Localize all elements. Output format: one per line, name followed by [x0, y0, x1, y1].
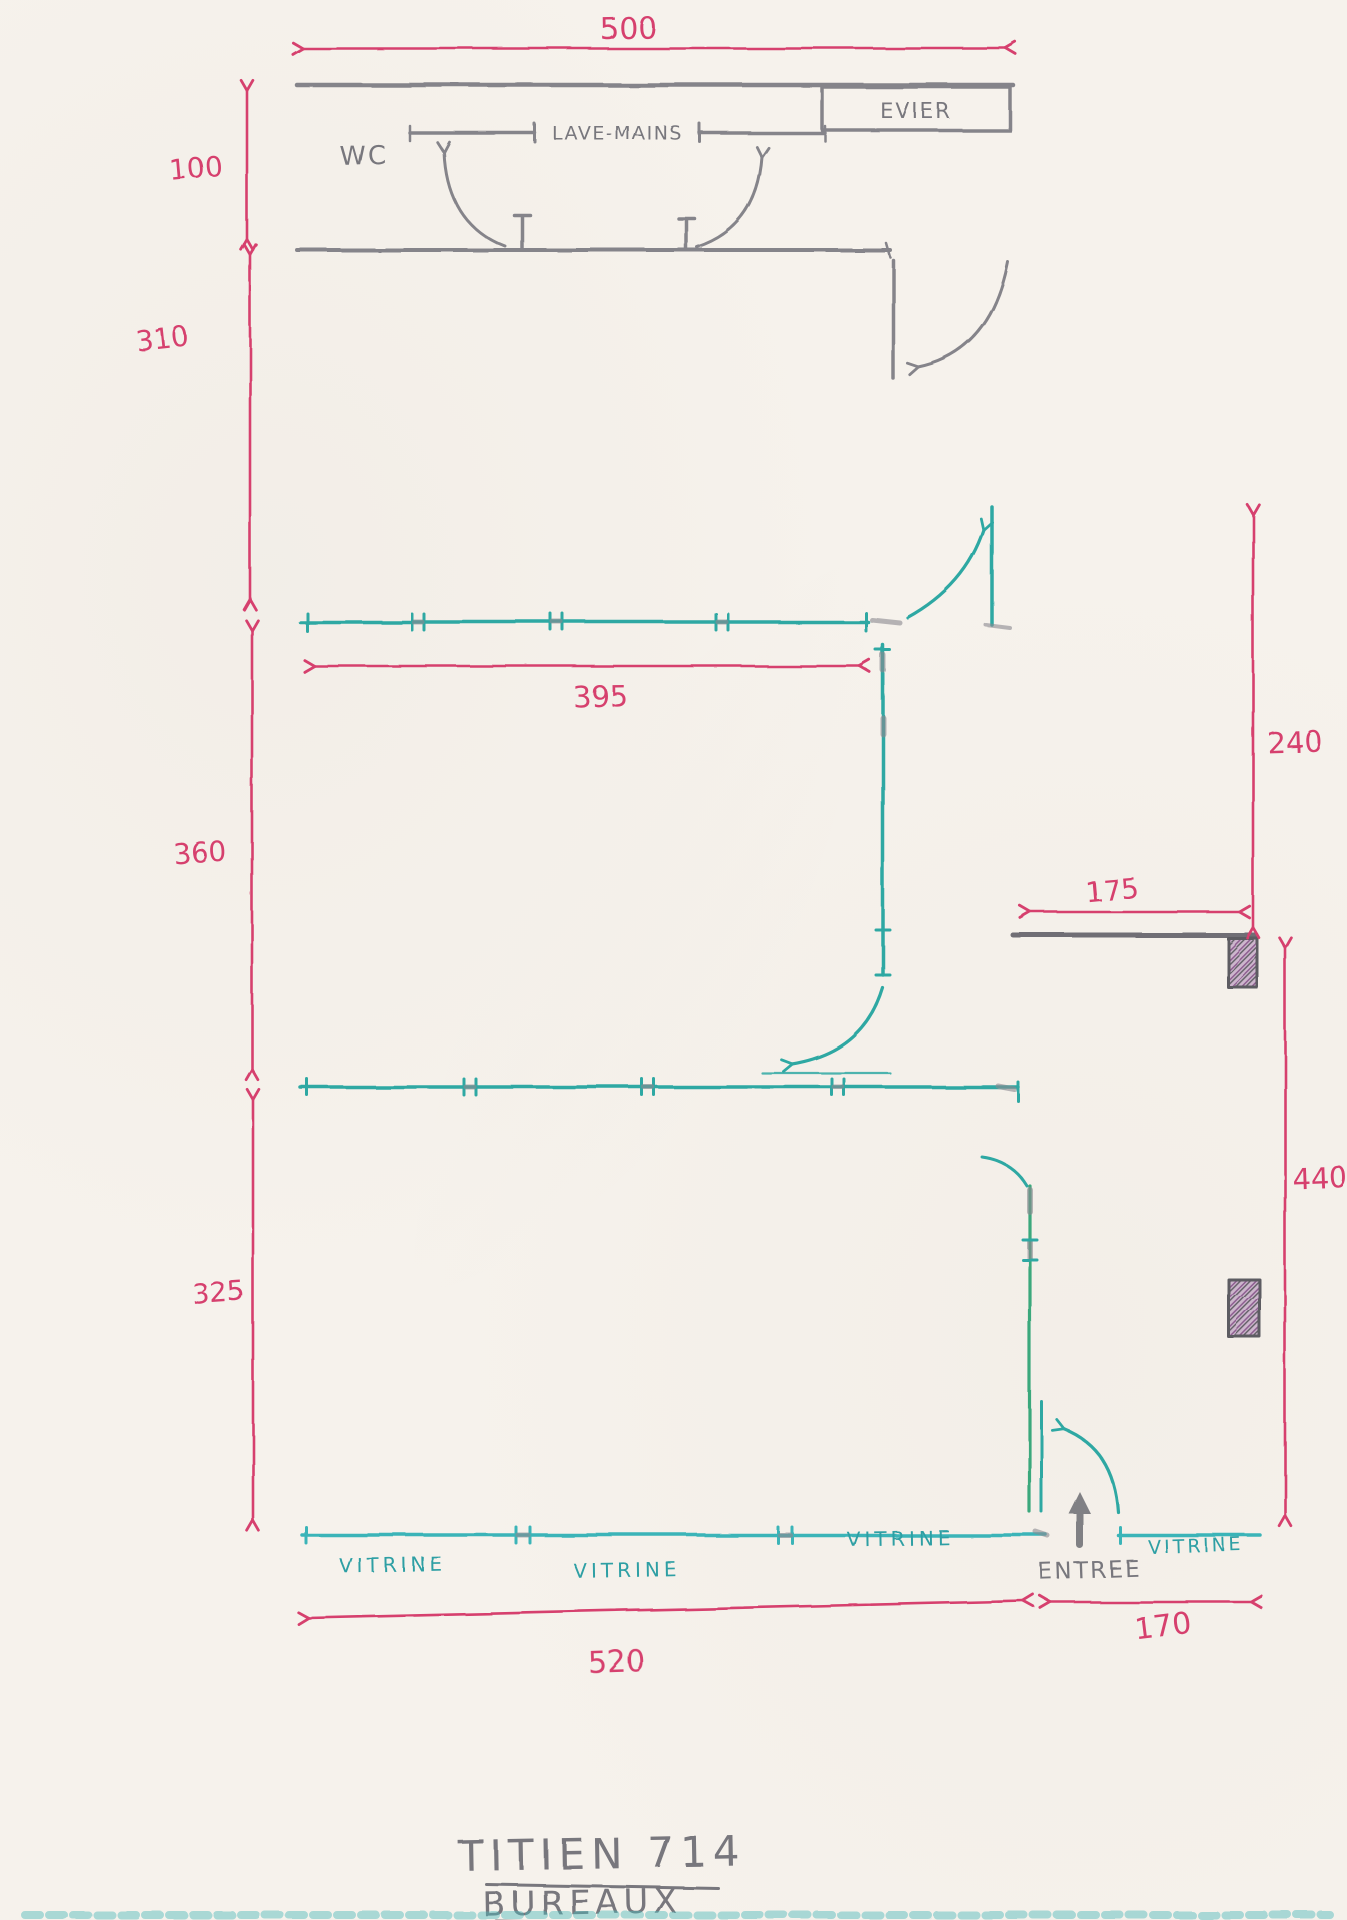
outer-walls [297, 85, 1256, 1535]
joint-smudge [986, 625, 1010, 628]
dim-label-zone3-depth: 325 [191, 1274, 247, 1311]
vitrine-label-2: VITRINE [573, 1557, 681, 1583]
dim-line-520 [308, 1601, 1024, 1618]
dim-label-total-width: 500 [599, 11, 657, 47]
entrance-door-swing [1064, 1429, 1118, 1512]
partition-a-door-swing [908, 530, 984, 618]
entree-arrow-head [1069, 1492, 1091, 1514]
entree-label: ENTREE [1038, 1556, 1142, 1586]
title-block: TITIEN 714 BUREAUX [457, 1826, 746, 1920]
dim-label-right-upper: 240 [1266, 724, 1323, 760]
plan-title: TITIEN 714 [457, 1826, 746, 1880]
scanned-floor-plan-page: WC LAVE-MAINS EVIER ENTREE VITRINE VITRI… [0, 0, 1347, 1920]
dim-label-recess-width: 175 [1084, 872, 1140, 910]
shopfront-wall [302, 1527, 1260, 1543]
vitrine-label-1: VITRINE [339, 1552, 447, 1578]
dim-label-front-right: 170 [1132, 1606, 1193, 1648]
fixture-label-evier: EVIER [880, 99, 952, 123]
dim-label-zone2-width: 395 [572, 679, 628, 714]
entree-marker [1069, 1492, 1091, 1545]
wc-door-post-right [678, 218, 694, 250]
dim-label-zone1-depth: 310 [134, 319, 191, 357]
pillar-hatched-upper [1228, 938, 1257, 987]
wc-door-swing-left [444, 152, 505, 246]
dim-label-wc-depth: 100 [168, 150, 224, 188]
dim-label-right-lower: 440 [1291, 1160, 1347, 1196]
dim-label-front-left: 520 [587, 1644, 645, 1681]
vitrine-label-4: VITRINE [1147, 1533, 1244, 1558]
wc-door-post-left [514, 215, 530, 250]
room-label-wc: WC [339, 140, 388, 172]
wc-entry-door-swing [918, 262, 1008, 367]
partition-c [300, 1079, 1027, 1186]
partition-b-door-swing [792, 988, 883, 1064]
vitrine-label-3: VITRINE [846, 1525, 954, 1551]
corridor-door-swing [982, 1157, 1027, 1186]
dimension-lines [247, 48, 1285, 1618]
fixture-label-lave-mains: LAVE-MAINS [553, 123, 684, 145]
wc-door-swing-right [697, 157, 762, 247]
dim-label-zone2-depth: 360 [172, 835, 227, 871]
partition-a [300, 507, 1010, 631]
pillar-hatched-lower [1228, 1279, 1259, 1336]
floor-plan-canvas: WC LAVE-MAINS EVIER ENTREE VITRINE VITRI… [0, 0, 1347, 1920]
partition-d [1023, 1186, 1118, 1512]
partition-b [762, 645, 890, 1073]
